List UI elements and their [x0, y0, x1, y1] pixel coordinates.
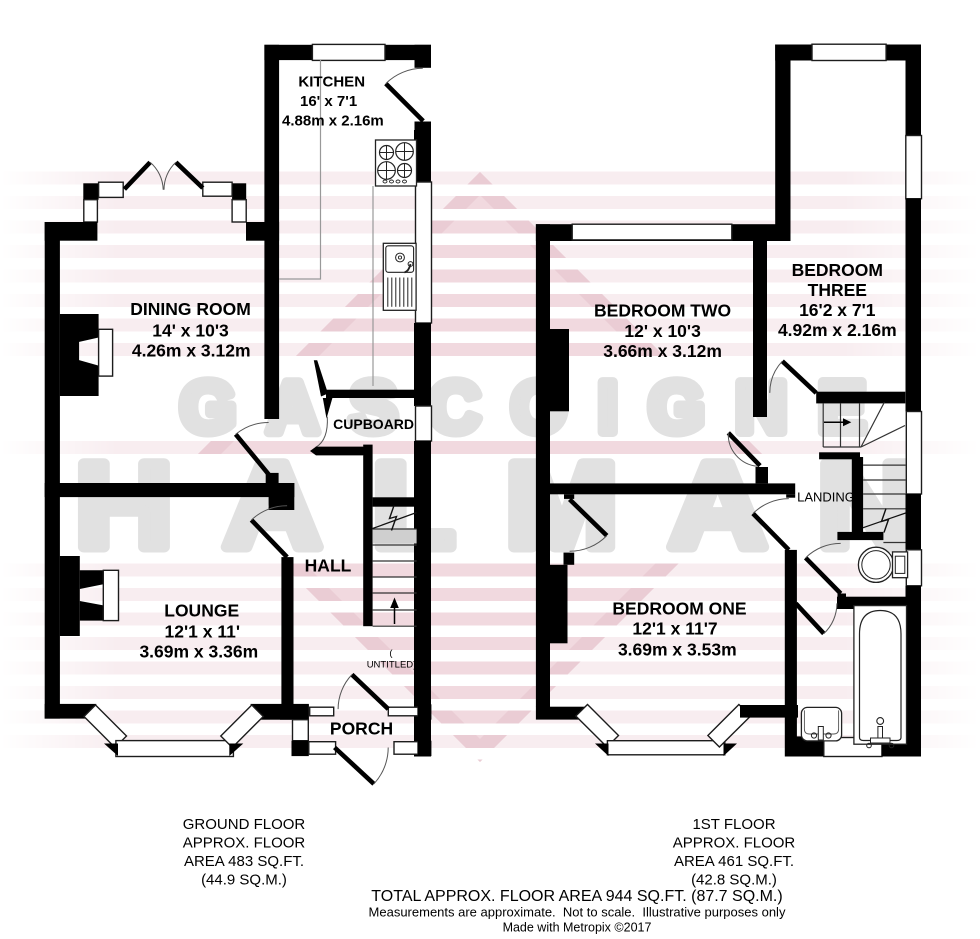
svg-text:12'1 x 11': 12'1 x 11': [165, 621, 240, 641]
svg-text:16' x 7'1: 16' x 7'1: [300, 93, 357, 110]
svg-text:THREE: THREE: [808, 280, 867, 300]
svg-text:LANDING: LANDING: [797, 489, 855, 504]
svg-text:3.69m x 3.53m: 3.69m x 3.53m: [618, 640, 737, 660]
svg-text:BEDROOM: BEDROOM: [792, 260, 883, 280]
svg-text:PORCH: PORCH: [330, 719, 393, 739]
svg-text:4.92m x 2.16m: 4.92m x 2.16m: [778, 320, 897, 340]
svg-text:12'1 x 11'7: 12'1 x 11'7: [632, 619, 717, 639]
svg-text:APPROX. FLOOR: APPROX. FLOOR: [183, 835, 306, 852]
svg-text:AREA 461 SQ.FT.: AREA 461 SQ.FT.: [674, 853, 794, 870]
svg-text:BEDROOM TWO: BEDROOM TWO: [594, 301, 731, 321]
svg-text:BEDROOM ONE: BEDROOM ONE: [612, 599, 746, 619]
svg-text:UNTITLED): UNTITLED): [367, 660, 417, 671]
svg-text:GROUND FLOOR: GROUND FLOOR: [183, 816, 306, 833]
svg-text:DINING ROOM: DINING ROOM: [130, 299, 251, 319]
svg-text:3.69m x 3.36m: 3.69m x 3.36m: [139, 642, 258, 662]
svg-text:1ST FLOOR: 1ST FLOOR: [692, 816, 775, 833]
svg-text:CUPBOARD: CUPBOARD: [333, 416, 414, 432]
svg-text:APPROX. FLOOR: APPROX. FLOOR: [673, 835, 796, 852]
svg-text:4.88m x 2.16m: 4.88m x 2.16m: [282, 112, 384, 129]
svg-text:(42.8 SQ.M.): (42.8 SQ.M.): [691, 871, 777, 888]
svg-text:TOTAL APPROX. FLOOR AREA 944 S: TOTAL APPROX. FLOOR AREA 944 SQ.FT. (87.…: [371, 888, 782, 905]
svg-text:4.26m x 3.12m: 4.26m x 3.12m: [132, 341, 251, 361]
svg-text:AREA 483 SQ.FT.: AREA 483 SQ.FT.: [184, 853, 304, 870]
svg-text:3.66m x 3.12m: 3.66m x 3.12m: [603, 341, 722, 361]
svg-text:14' x 10'3: 14' x 10'3: [152, 320, 229, 340]
svg-text:Made with Metropix ©2017: Made with Metropix ©2017: [503, 921, 652, 935]
svg-text:KITCHEN: KITCHEN: [298, 74, 365, 91]
svg-text:LOUNGE: LOUNGE: [164, 601, 239, 621]
svg-text:(44.9 SQ.M.): (44.9 SQ.M.): [201, 871, 287, 888]
svg-text:Measurements are approximate.: Measurements are approximate. Not to sca…: [369, 905, 786, 920]
svg-text:16'2 x 7'1: 16'2 x 7'1: [799, 300, 876, 320]
svg-text:12' x 10'3: 12' x 10'3: [624, 321, 701, 341]
svg-text:HALL: HALL: [305, 556, 352, 576]
